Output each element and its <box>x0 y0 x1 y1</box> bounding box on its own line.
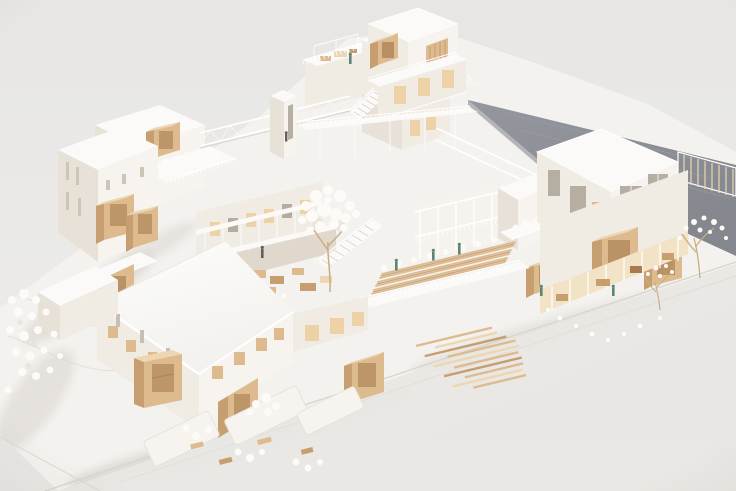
architectural-model-photo <box>0 0 736 491</box>
photo-vignette <box>0 0 736 491</box>
